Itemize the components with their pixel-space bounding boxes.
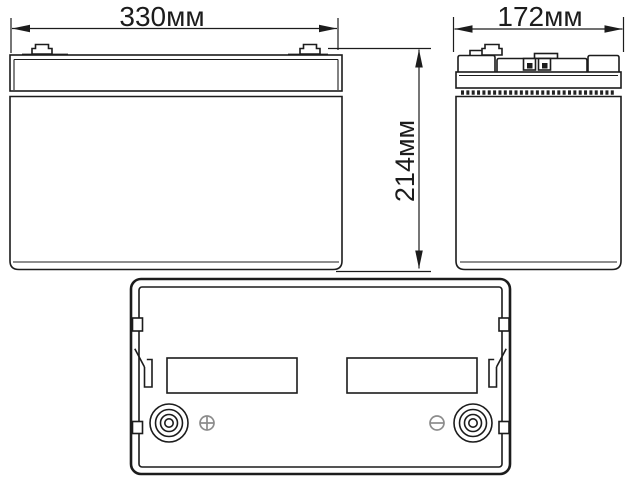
dimension-depth-label: 172мм xyxy=(497,1,582,32)
side-valve-port-right xyxy=(542,63,548,69)
top-notch-left-bottom xyxy=(133,422,143,434)
dimension-depth: 172мм xyxy=(454,1,624,52)
dimension-depth-arrow-left xyxy=(455,25,473,33)
top-notch-left-top xyxy=(133,318,143,331)
dimension-height-label: 214мм xyxy=(390,120,420,202)
side-lid-band xyxy=(456,72,621,88)
terminal-positive xyxy=(150,404,188,442)
top-view xyxy=(131,279,510,474)
side-lid-block-right xyxy=(588,56,619,73)
dimension-height-arrow-top xyxy=(415,50,423,68)
front-terminal-right xyxy=(300,45,320,55)
front-lid xyxy=(10,55,342,91)
terminal-negative xyxy=(454,404,492,442)
top-clip-right-hook xyxy=(489,360,497,388)
front-terminal-left xyxy=(32,45,52,55)
side-terminal-step xyxy=(470,51,482,56)
battery-dimensions-diagram: 330мм 172мм 214мм xyxy=(0,0,640,480)
dimension-height: 214мм xyxy=(328,49,431,272)
front-body xyxy=(10,97,342,270)
dimension-width-arrow-left xyxy=(12,25,30,33)
dimension-depth-arrow-right xyxy=(605,25,623,33)
top-notch-right-bottom xyxy=(499,422,509,434)
top-label-area-left xyxy=(167,358,297,393)
side-body xyxy=(456,97,621,270)
top-notch-right-top xyxy=(499,318,509,331)
dimension-height-arrow-bottom xyxy=(415,251,423,269)
side-valve-port-left xyxy=(527,63,533,69)
drawing-canvas: 330мм 172мм 214мм xyxy=(0,0,640,480)
front-view xyxy=(10,45,342,270)
side-lid-block-left xyxy=(458,56,495,73)
top-label-area-right xyxy=(347,358,477,393)
minus-in-circle-icon xyxy=(430,416,445,430)
top-clip-left-hook xyxy=(145,360,153,388)
plus-in-circle-icon xyxy=(200,416,215,431)
dimension-width-arrow-right xyxy=(319,25,337,33)
side-view xyxy=(456,45,621,270)
dimension-width: 330мм xyxy=(11,1,338,53)
side-terminal xyxy=(482,45,502,56)
dimension-width-label: 330мм xyxy=(119,1,204,32)
